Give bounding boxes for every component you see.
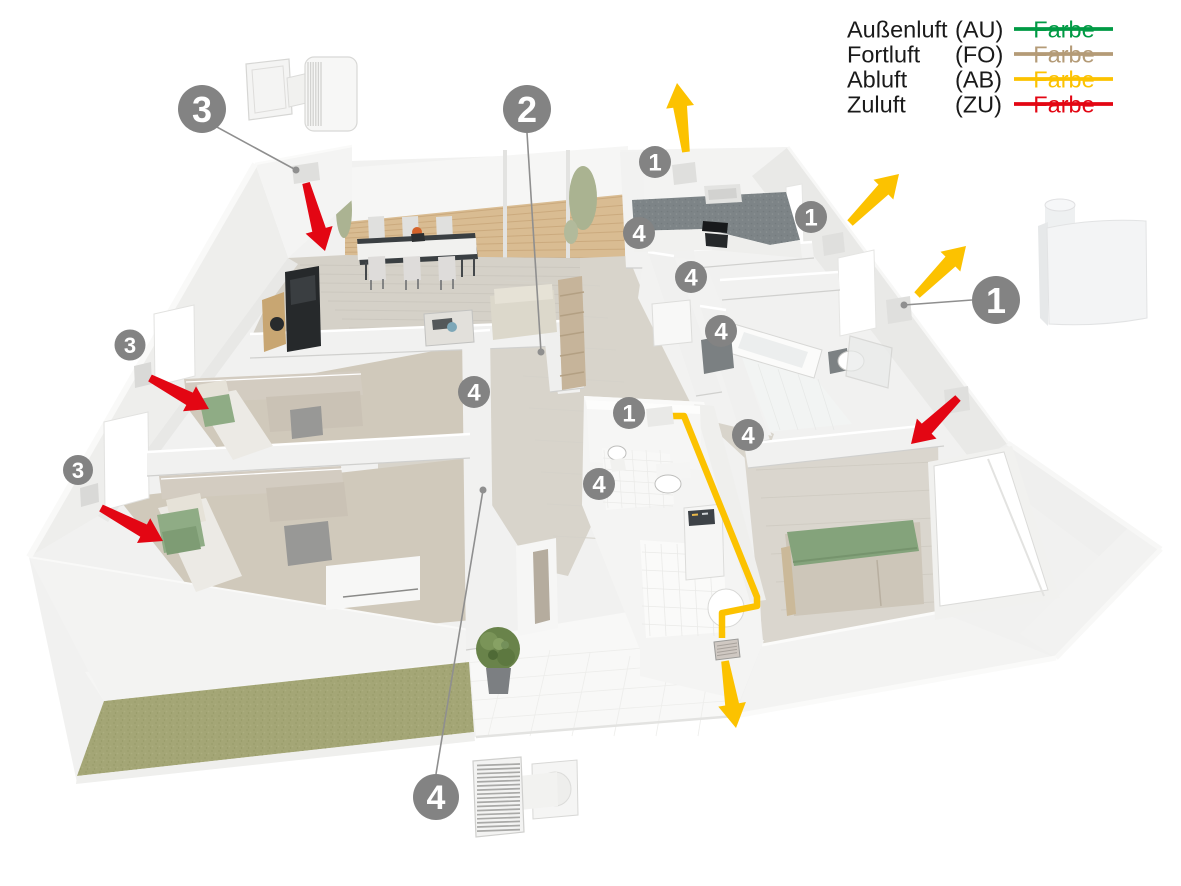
svg-text:(AU): (AU) (955, 17, 1003, 43)
svg-text:Abluft: Abluft (847, 67, 908, 93)
svg-text:Farbe: Farbe (1033, 17, 1094, 43)
svg-text:(AB): (AB) (955, 67, 1002, 93)
svg-text:3: 3 (124, 333, 136, 358)
svg-text:4: 4 (427, 779, 446, 817)
svg-text:4: 4 (741, 423, 755, 450)
svg-text:Fortluft: Fortluft (847, 42, 921, 68)
svg-text:3: 3 (72, 458, 84, 483)
svg-text:1: 1 (986, 280, 1006, 321)
svg-text:1: 1 (622, 401, 635, 428)
svg-text:4: 4 (632, 221, 646, 248)
svg-text:4: 4 (467, 380, 481, 407)
svg-text:Farbe: Farbe (1033, 92, 1094, 118)
svg-text:4: 4 (592, 472, 606, 499)
svg-text:Außenluft: Außenluft (847, 17, 948, 43)
svg-text:4: 4 (714, 319, 728, 346)
svg-text:1: 1 (648, 150, 661, 177)
svg-text:3: 3 (192, 89, 212, 130)
svg-text:4: 4 (684, 265, 698, 292)
svg-text:1: 1 (804, 205, 817, 232)
svg-text:2: 2 (517, 89, 537, 130)
svg-text:(ZU): (ZU) (955, 92, 1002, 118)
svg-text:Zuluft: Zuluft (847, 92, 906, 118)
svg-text:Farbe: Farbe (1033, 67, 1094, 93)
svg-text:(FO): (FO) (955, 42, 1003, 68)
svg-text:Farbe: Farbe (1033, 42, 1094, 68)
